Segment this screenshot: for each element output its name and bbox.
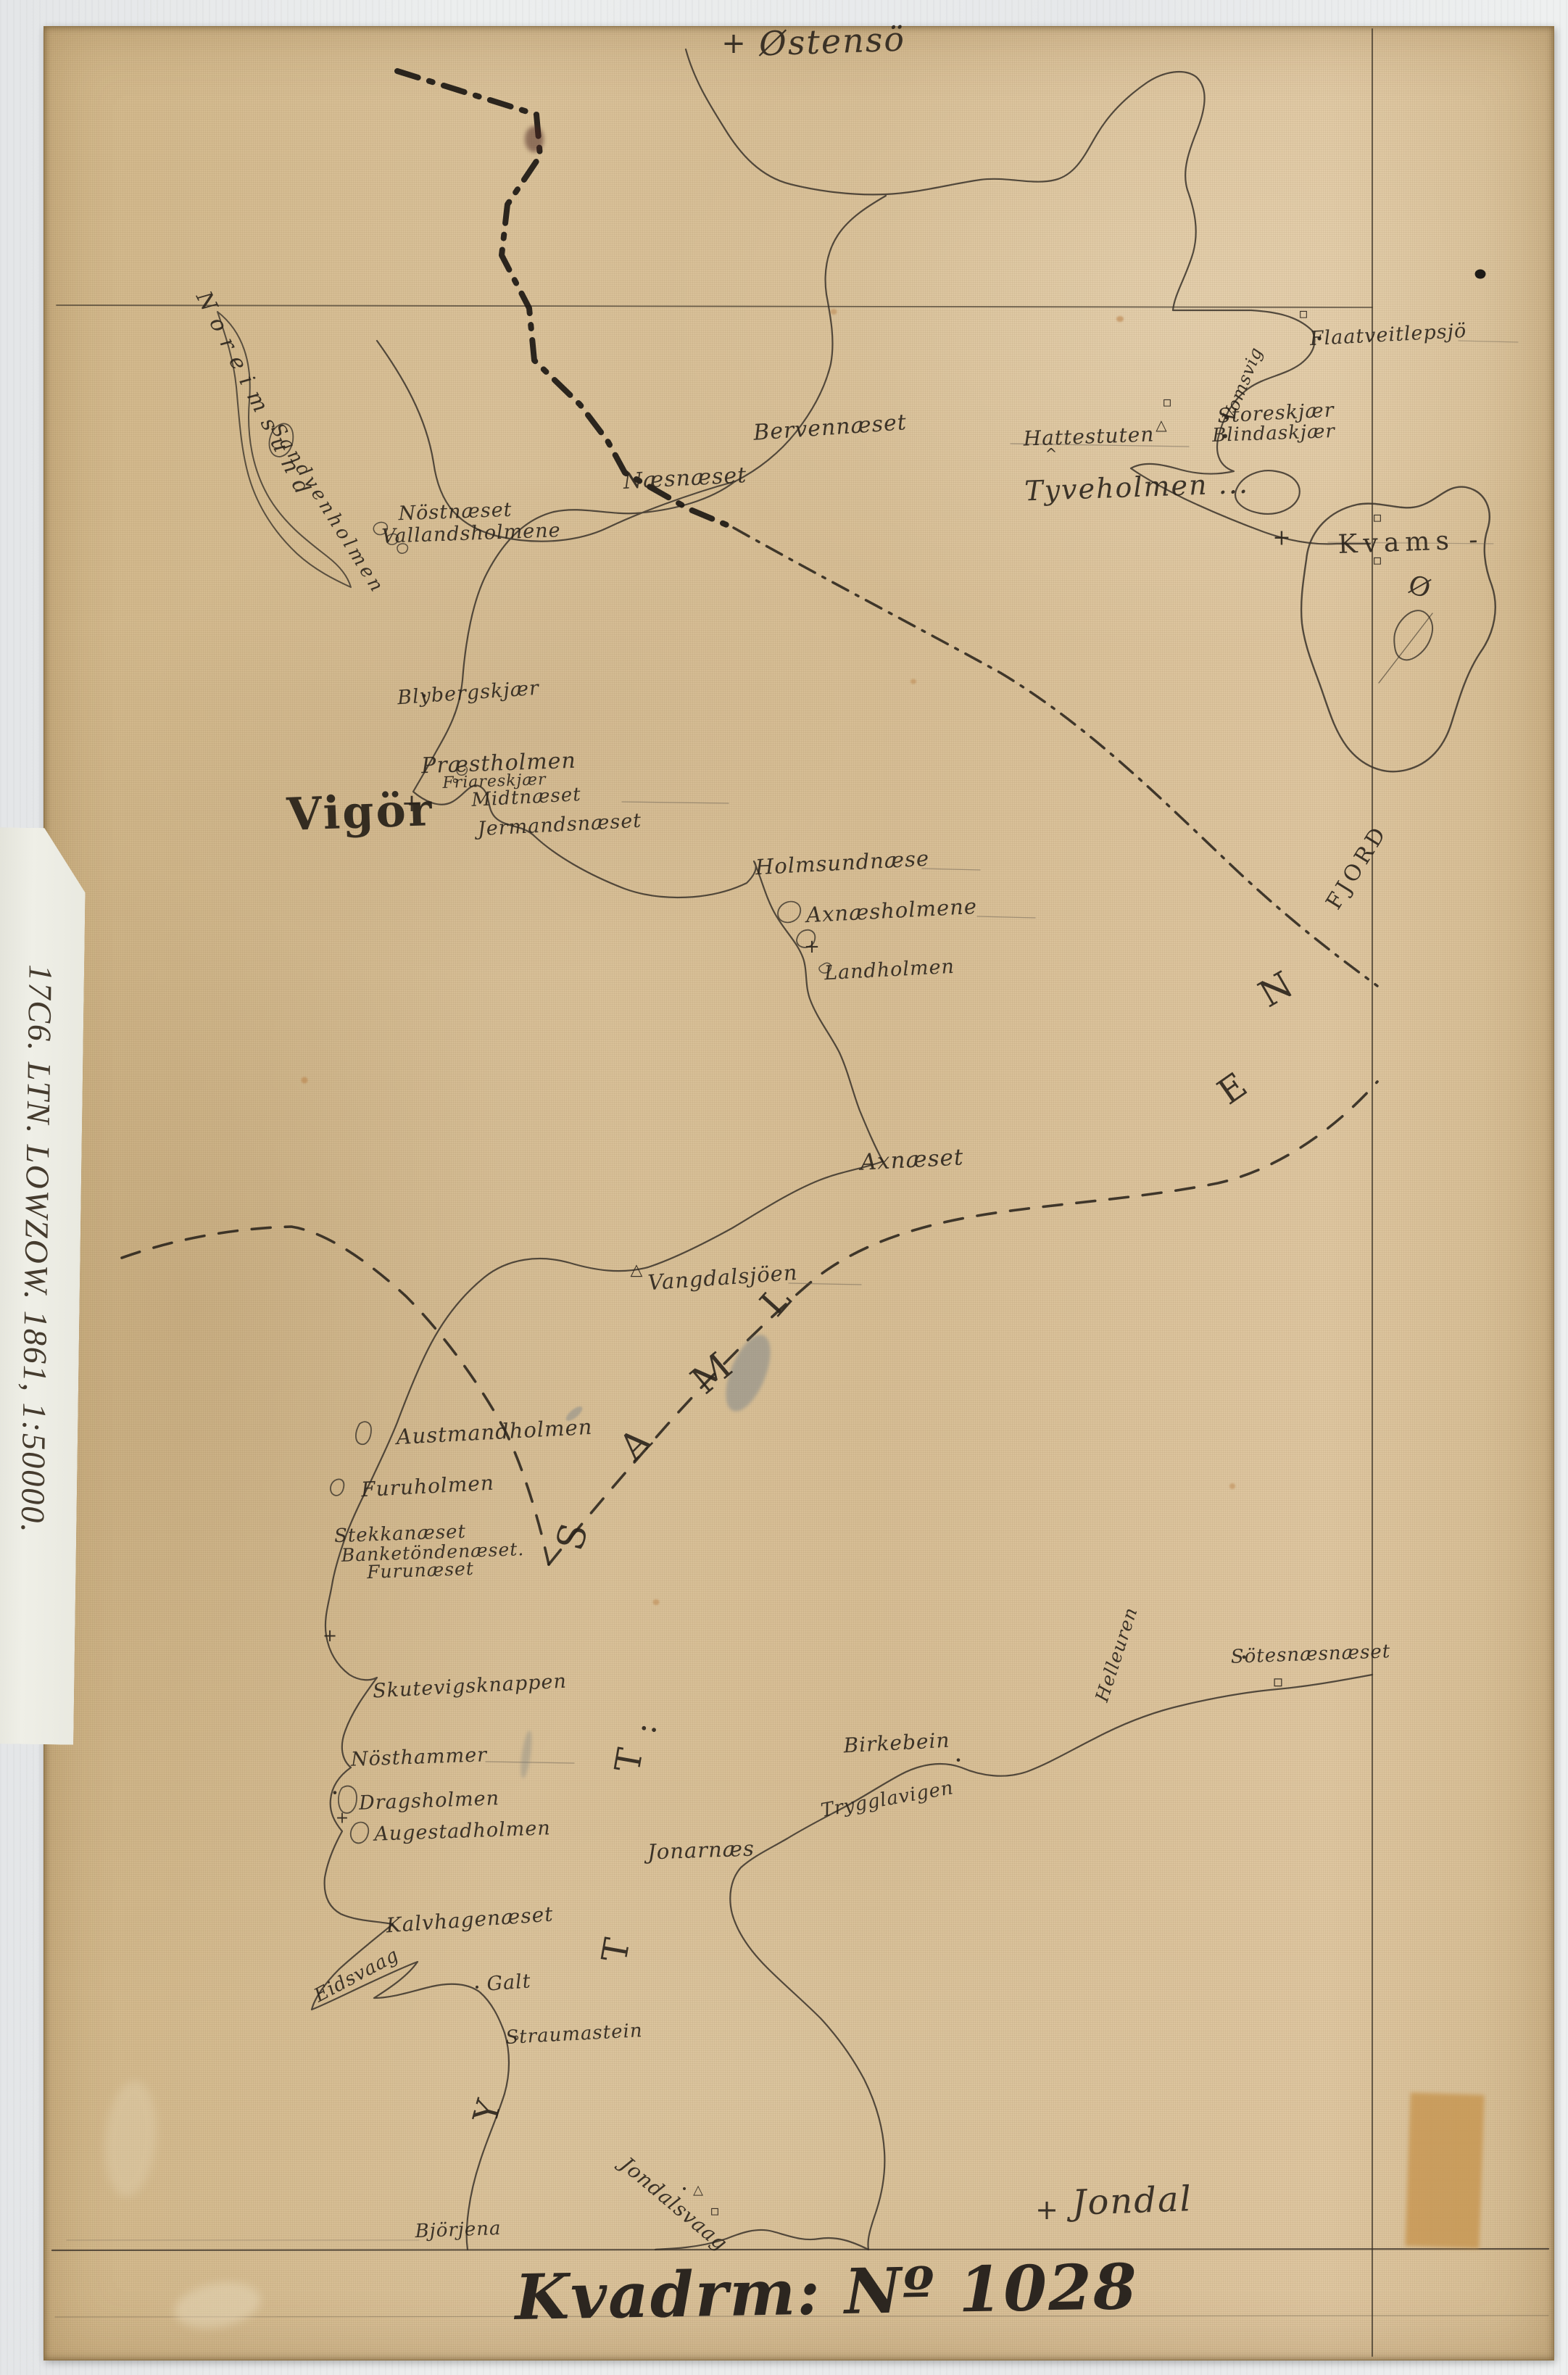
- fox-spot-4: [910, 679, 916, 684]
- sym-hattestuten-caret: ^: [1045, 445, 1058, 463]
- label-bjorjena: Björjena: [415, 2218, 502, 2242]
- sym-drags-dot: •: [331, 1786, 338, 1800]
- sym-sotes-square: ▫: [1273, 1673, 1284, 1691]
- archive-label-strip: 17C6. LTN. LOWZOW. 1861, 1:50000.: [0, 827, 86, 1745]
- neat-line-horizontal-bottom: [52, 2249, 1548, 2250]
- sym-kvams-cross: +: [1272, 526, 1290, 551]
- islet-austmandholmen: [356, 1422, 371, 1444]
- leader-vangdalsjoen: [789, 1283, 861, 1285]
- label-jondal: Jondal: [1071, 2179, 1193, 2223]
- map-sheet-title: Kvadrm: Nº 1028: [514, 2250, 1138, 2334]
- sym-jondal-cross: +: [1035, 2194, 1058, 2226]
- leader-axnaesholmene: [977, 916, 1035, 918]
- label-blindaskjaer: Blindaskjær: [1212, 420, 1336, 447]
- boundary-blot: [525, 126, 544, 152]
- fox-spot-5: [653, 1599, 660, 1605]
- label-hattestuten: Hattestuten: [1023, 422, 1155, 450]
- sym-kvams-square-1: ▫: [1372, 508, 1382, 526]
- fox-spot-6: [831, 309, 837, 315]
- fox-spot-3: [1229, 1483, 1235, 1489]
- sym-jondal-dot: •: [681, 2184, 687, 2195]
- islet-furuholmen: [331, 1479, 344, 1495]
- leader-nosthammer: [486, 1762, 574, 1763]
- sym-coast-triangle-1: △: [1156, 416, 1166, 434]
- coast-jondal-east: [730, 1675, 1372, 2250]
- boundary-bold-dashdot: [397, 71, 734, 528]
- islet-axnaes-1: [778, 902, 800, 923]
- label-kvams: Kvams -: [1337, 525, 1484, 560]
- label-jonarnaes: Jonarnæs: [647, 1836, 755, 1864]
- label-axnaeset: Axnæset: [860, 1144, 964, 1175]
- leader-midtnaeset: [622, 802, 729, 803]
- sym-kvams-square-2: ▫: [1372, 551, 1382, 568]
- sym-vigor-cross: +: [402, 789, 423, 818]
- fox-spot-2: [302, 1077, 308, 1084]
- sym-cross-coast-2: +: [336, 1810, 349, 1828]
- scanned-map-page: +ØstensöNoreimsundSandvenholmenNöstnæset…: [0, 0, 1568, 2375]
- label-furunaeset: Furunæset: [367, 1558, 475, 1583]
- sym-coast-square-2: ▫: [1162, 393, 1172, 410]
- sym-axnaes-cross: +: [804, 936, 820, 958]
- neat-line-horizontal-top: [57, 305, 1372, 307]
- sym-cross-coast-1: +: [323, 1625, 337, 1646]
- leader-holmsundnaese: [922, 869, 980, 870]
- label-galt: Galt: [486, 1970, 531, 1995]
- sym-coast-square-1: ▫: [1298, 304, 1308, 322]
- label-ostenso: Østensö: [758, 19, 906, 63]
- coast-north-loop: [686, 49, 1370, 544]
- fox-spot-1: [1116, 316, 1124, 322]
- archive-label-text: 17C6. LTN. LOWZOW. 1861, 1:50000.: [14, 964, 60, 1534]
- sym-vangdal-triangle: △: [631, 1261, 643, 1280]
- sym-ostenso-cross: +: [721, 27, 746, 60]
- sym-galt-dot: •: [474, 1982, 480, 1994]
- island-kvamso-leaf: [1394, 610, 1432, 660]
- ink-dot-right-edge: [1475, 270, 1486, 279]
- coast-jondalsvaag: [655, 2230, 868, 2250]
- islet-augestadholmen: [351, 1823, 369, 1844]
- sym-jondal-square: ▫: [710, 2202, 720, 2219]
- sym-birkebein-dot: •: [955, 1754, 961, 1767]
- label-nosthammer: Nösthammer: [350, 1744, 487, 1771]
- stain-bottom-right: [1405, 2092, 1484, 2248]
- sym-jondal-triangle: △: [693, 2183, 703, 2198]
